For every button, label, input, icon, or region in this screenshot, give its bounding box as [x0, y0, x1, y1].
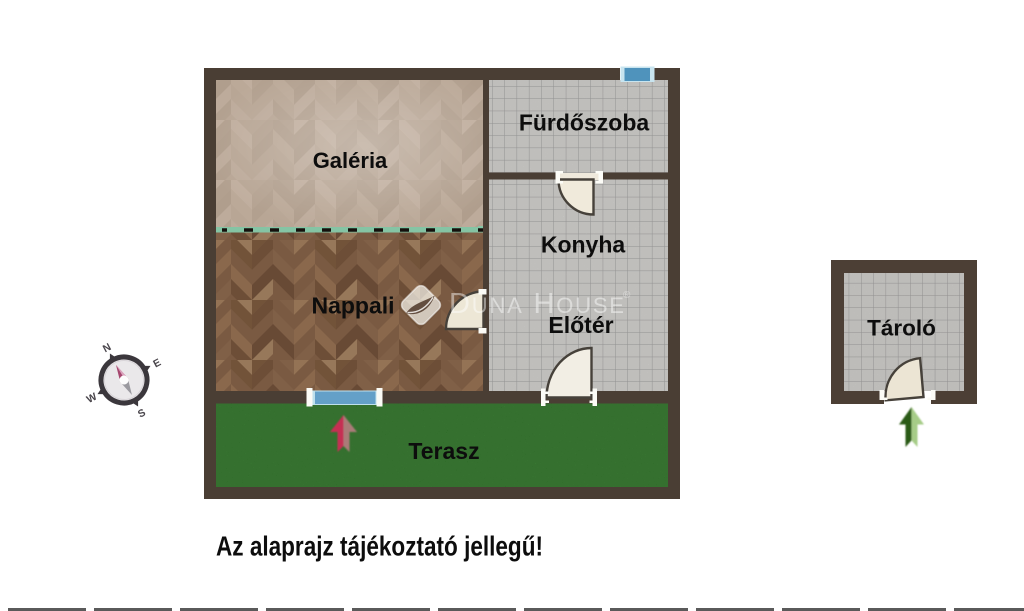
- svg-text:Az alaprajz tájékoztató jelleg: Az alaprajz tájékoztató jellegű!: [216, 531, 543, 562]
- svg-text:Galéria: Galéria: [313, 148, 388, 173]
- svg-text:Fürdőszoba: Fürdőszoba: [519, 110, 650, 136]
- svg-text:Tároló: Tároló: [867, 316, 936, 341]
- svg-text:®: ®: [623, 290, 631, 301]
- svg-text:Nappali: Nappali: [311, 293, 394, 319]
- svg-text:DUNA HOUSE: DUNA HOUSE: [449, 288, 626, 320]
- svg-text:Terasz: Terasz: [408, 438, 479, 464]
- svg-text:Konyha: Konyha: [541, 232, 626, 258]
